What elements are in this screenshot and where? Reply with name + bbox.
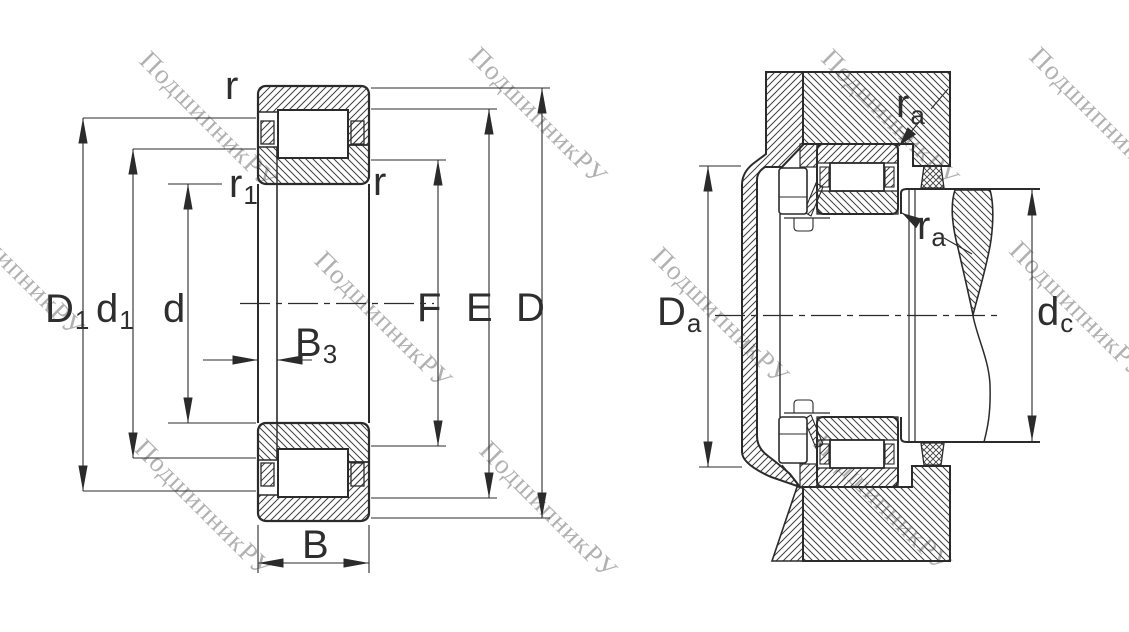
seal-ring-section: [921, 443, 944, 465]
label-sub: a: [931, 222, 946, 252]
label-main: r: [229, 162, 242, 206]
seal-ring-section: [921, 166, 944, 188]
label-main: d: [1037, 290, 1059, 334]
dim-label-E: E: [466, 286, 493, 330]
label-main: r: [917, 204, 930, 248]
roller: [830, 440, 884, 468]
relief-groove: [794, 400, 813, 413]
label-sub: 1: [119, 305, 133, 335]
shaft-break-line: [973, 316, 990, 442]
label-sub: c: [1060, 308, 1073, 338]
outer-ring-section: [817, 144, 898, 163]
label-sub: 1: [243, 180, 257, 210]
dim-label-D: D: [516, 286, 545, 330]
inner-ring-section: [817, 191, 898, 214]
cap-clamping-lip: [800, 464, 817, 487]
label-main: D: [516, 286, 545, 330]
cage-section: [261, 463, 274, 486]
cage-section: [885, 444, 894, 464]
cage-section: [885, 167, 894, 187]
left-section-view: D1 d1 d F E D B3 B r r r1: [45, 64, 550, 573]
label-main: F: [417, 286, 441, 330]
cage-section: [820, 444, 829, 464]
radius-label-ra-bottom: ra: [917, 204, 946, 252]
label-main: r: [373, 160, 386, 204]
label-sub: a: [687, 308, 702, 338]
label-main: D: [657, 290, 686, 334]
dim-label-B: B: [302, 523, 329, 567]
label-main: d: [163, 287, 185, 331]
bearing-top-section: [258, 86, 369, 184]
watermark-text: ПодшипникРУ: [464, 41, 614, 191]
watermark-text: ПодшипникРУ: [129, 433, 279, 583]
label-sub: a: [910, 100, 925, 130]
inner-ring-section: [817, 417, 898, 440]
label-sub: 3: [323, 339, 337, 369]
cage-section: [820, 167, 829, 187]
bearing-dimension-diagram: ПодшипникРУ ПодшипникРУ ПодшипникРУ Подш…: [0, 0, 1129, 632]
label-main: D: [45, 287, 74, 331]
shaft-break-section: [952, 190, 993, 315]
watermark-text: ПодшипникРУ: [1024, 41, 1129, 191]
label-sub: 1: [75, 305, 89, 335]
roller: [830, 163, 884, 191]
label-main: B: [302, 523, 329, 567]
dim-label-d1: d1: [96, 287, 134, 335]
cage-section: [351, 463, 364, 486]
dim-label-F: F: [417, 286, 441, 330]
bearing-bottom-section: [258, 423, 369, 521]
cap-clamping-lip: [800, 144, 817, 167]
abutment-spacer-ring: [779, 168, 807, 214]
abutment-spacer-ring: [779, 417, 807, 463]
relief-groove: [794, 218, 813, 231]
watermark-text: ПодшипникРУ: [474, 435, 624, 585]
technical-drawing-page: ПодшипникРУ ПодшипникРУ ПодшипникРУ Подш…: [0, 0, 1129, 632]
radius-label-r-outer: r: [225, 64, 238, 108]
cage-section: [261, 121, 274, 144]
radius-label-r-inner: r: [373, 160, 386, 204]
shaft-shoulder-bottom: [901, 417, 1040, 442]
label-main: d: [96, 287, 118, 331]
label-main: B: [295, 321, 322, 365]
dim-label-d: d: [163, 287, 185, 331]
label-main: E: [466, 286, 493, 330]
end-cap-bottom-flange: [772, 487, 803, 561]
outer-ring-section: [817, 468, 898, 487]
cage-section: [351, 121, 364, 144]
roller: [278, 110, 348, 158]
roller: [278, 449, 348, 497]
label-main: r: [225, 64, 238, 108]
dim-label-B3: B3: [295, 321, 337, 369]
mounted-bearing-top-section: [804, 144, 898, 216]
label-main: r: [896, 82, 909, 126]
